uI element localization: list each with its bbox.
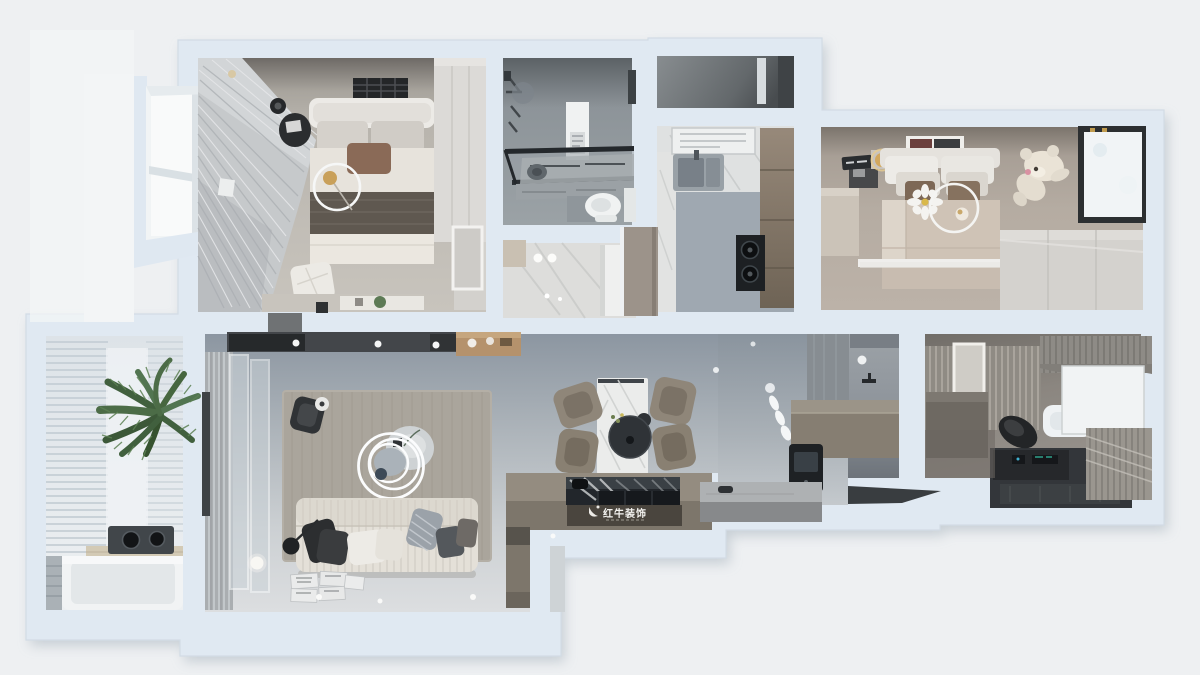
svg-text:红牛装饰: 红牛装饰 <box>603 507 647 520</box>
